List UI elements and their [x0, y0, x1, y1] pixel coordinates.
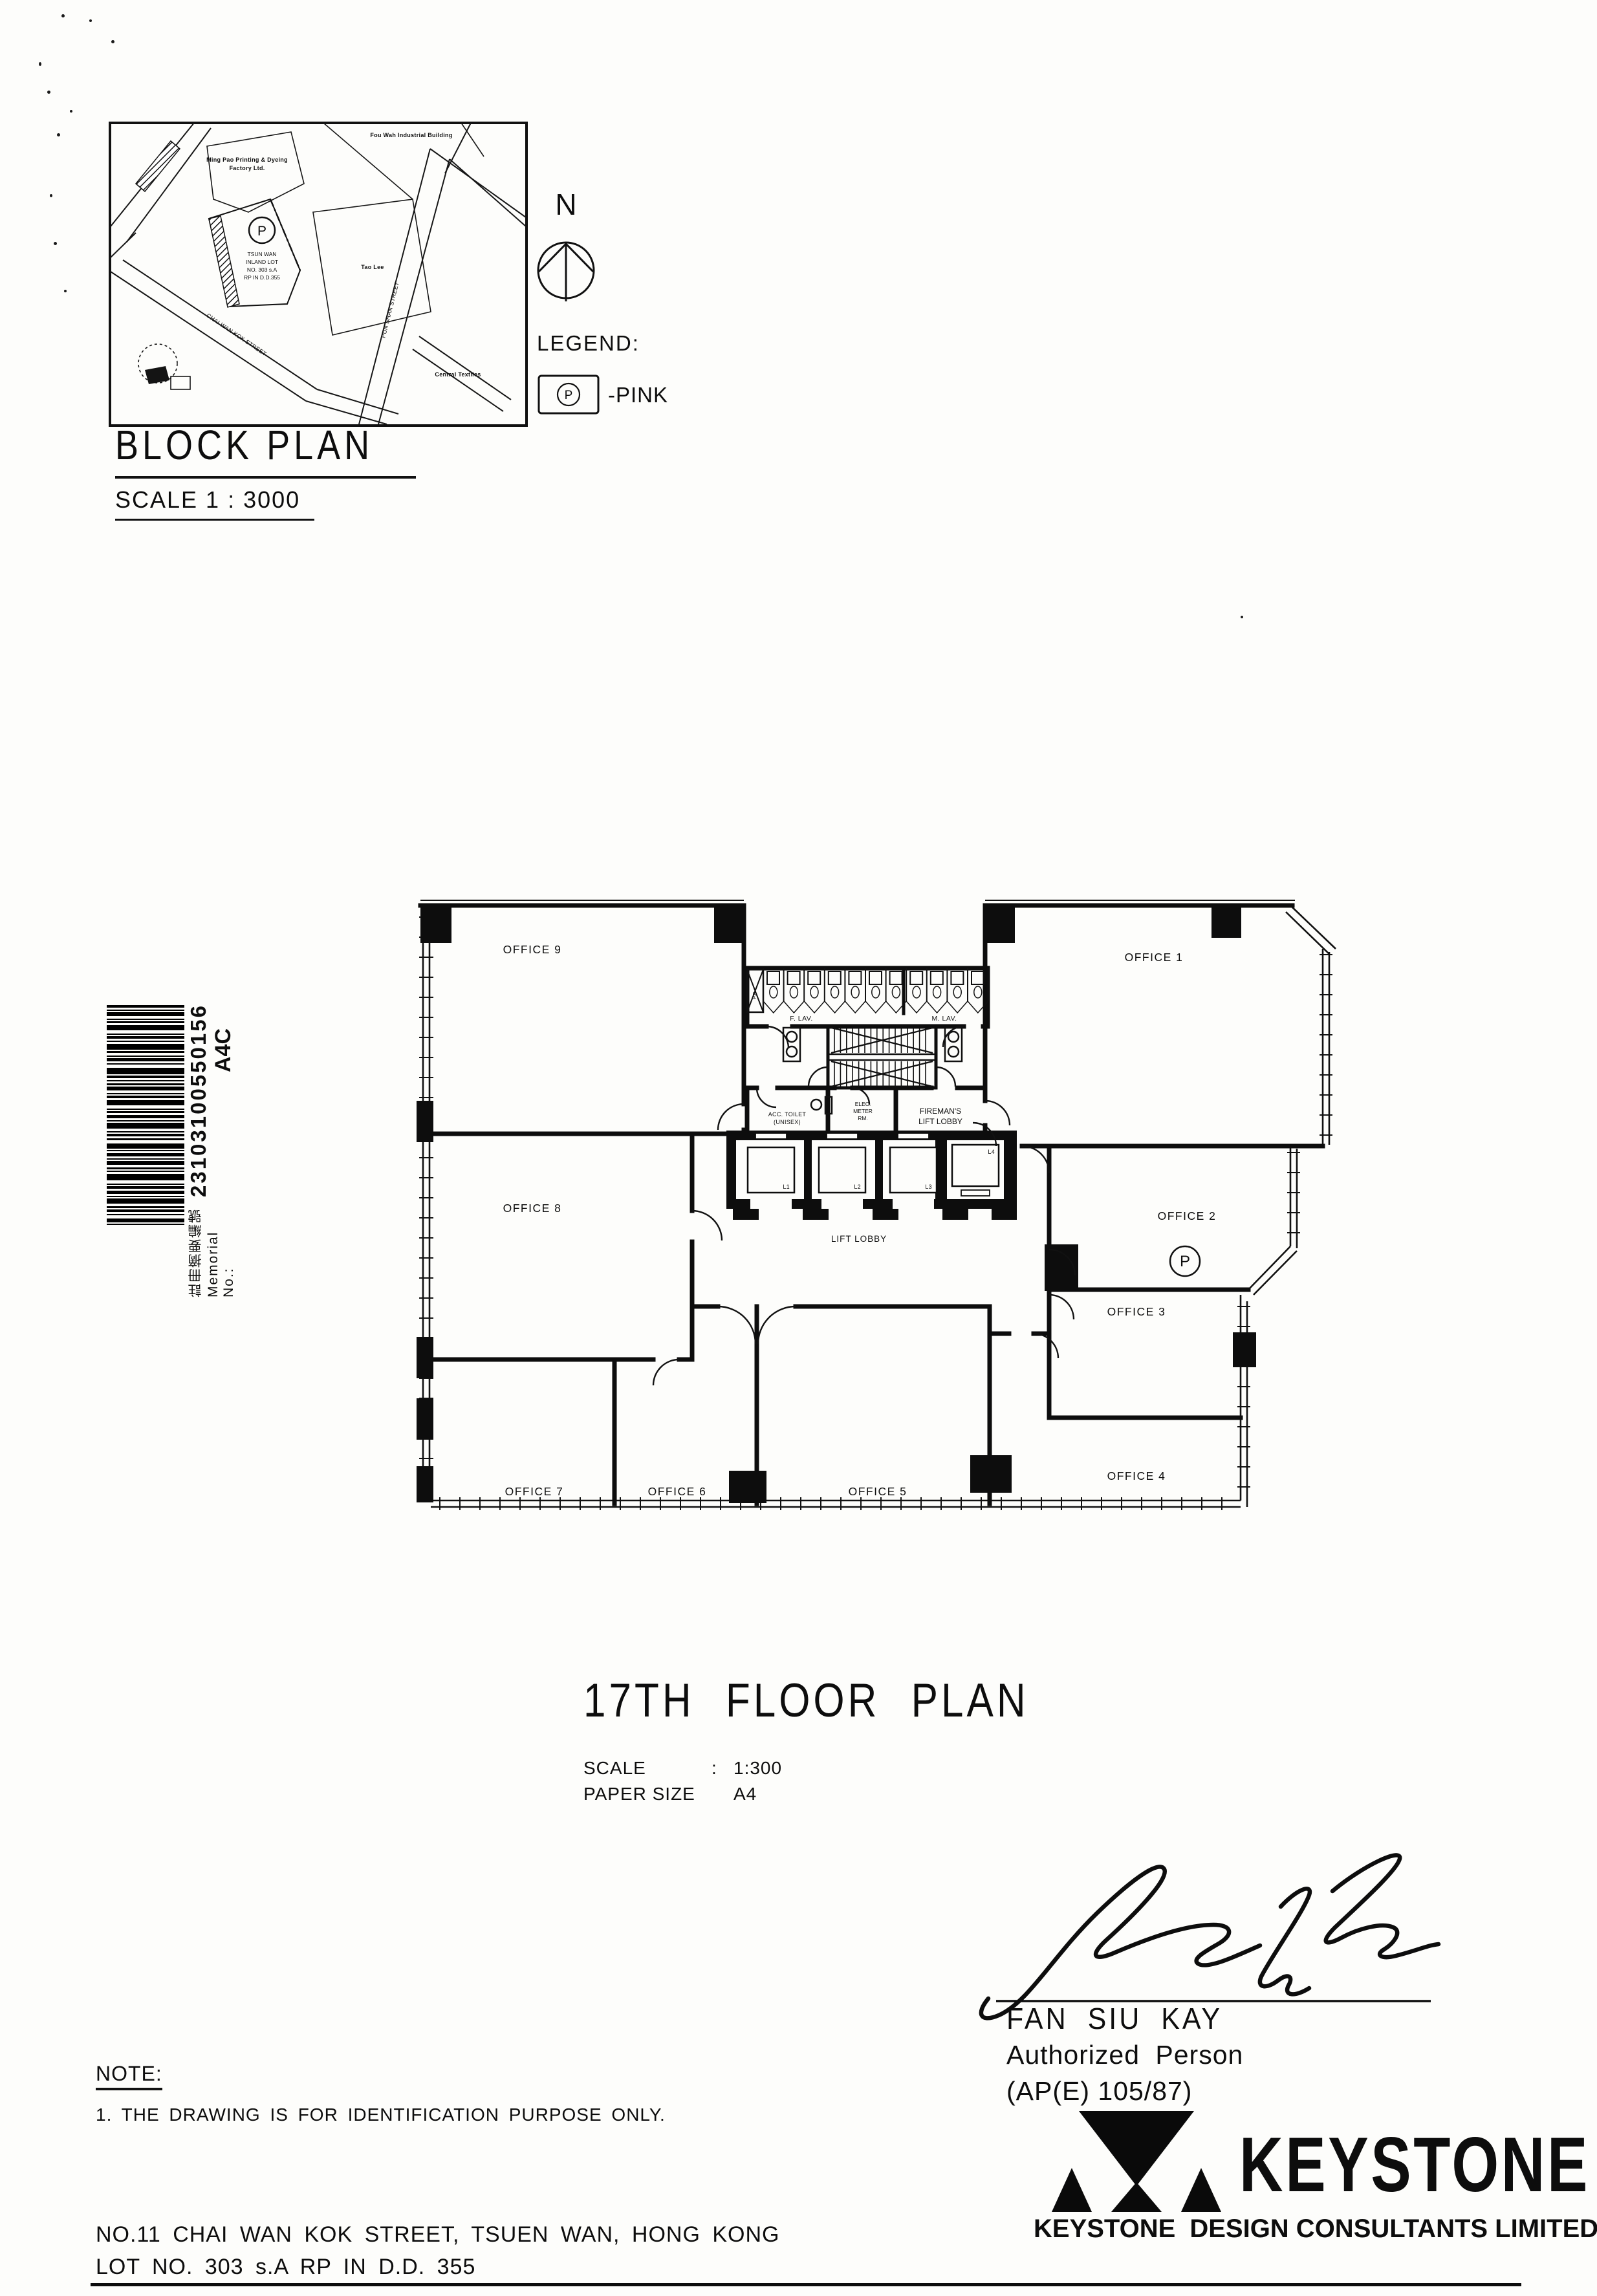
block-plan-title-underline: [115, 476, 416, 479]
brand-name-small: KEYSTONE: [1034, 2215, 1175, 2243]
scale-label: SCALE: [583, 1758, 712, 1779]
paper-value: A4: [733, 1784, 757, 1804]
scan-speck: [64, 290, 67, 292]
office-3-label: OFFICE 3: [1107, 1305, 1166, 1318]
brand-wordmark: KEYSTONE: [1239, 2121, 1590, 2210]
scale-colon: :: [712, 1758, 733, 1779]
signatory-name: FAN SIU KAY: [1006, 2002, 1222, 2037]
memorial-label: 註冊摘要編號 Memorial No.:: [186, 1197, 237, 1297]
north-label: N: [555, 188, 576, 221]
office-9-label: OFFICE 9: [503, 943, 562, 956]
bottom-rule: [91, 2283, 1521, 2286]
office-1-label: OFFICE 1: [1125, 951, 1184, 964]
keystone-logo-icon: [1041, 2110, 1232, 2215]
fireman-label-1: FIREMAN'S: [920, 1107, 961, 1116]
address-line-1: NO.11 CHAI WAN KOK STREET, TSUEN WAN, HO…: [96, 2222, 779, 2247]
block-plan-scale-underline: [115, 519, 314, 521]
lift-l4-label: L4: [988, 1149, 995, 1155]
barcode: [107, 1004, 186, 1297]
map-label-ming-pao-2: Factory Ltd.: [229, 165, 265, 171]
block-plan-scale: SCALE 1 : 3000: [115, 486, 300, 514]
legend-value: -PINK: [608, 383, 668, 407]
map-border: [110, 123, 527, 426]
signature: [970, 1829, 1452, 2023]
note-heading: NOTE:: [96, 2062, 162, 2090]
map-label-fou-wah: Fou Wah Industrial Building: [370, 132, 452, 138]
lift-l3-label: L3: [925, 1184, 932, 1190]
address-line-2: LOT NO. 303 s.A RP IN D.D. 355: [96, 2255, 475, 2280]
brand-company-line: KEYSTONEDESIGN CONSULTANTS LIMITED: [1034, 2215, 1597, 2244]
elec-label-1: ELEC.: [855, 1101, 871, 1107]
site-hatch-strip: [209, 216, 239, 307]
acc-toilet-label-2: (UNISEX): [774, 1119, 801, 1125]
m-lav-label: M. LAV.: [931, 1015, 957, 1023]
brand-suffix: DESIGN CONSULTANTS LIMITED: [1190, 2215, 1597, 2243]
map-label-central: Central Textiles: [435, 371, 481, 378]
block-plan-map: P TSUN WAN INLAND LOT NO. 303 s.A RP IN …: [109, 122, 528, 427]
scan-speck: [111, 40, 114, 43]
floor-plan: L1 L2 L3 L4 OFFICE 9 OFFICE 1 O: [414, 887, 1371, 1554]
lift-l2-label: L2: [854, 1184, 861, 1190]
memorial-code: A4C: [211, 1008, 236, 1072]
scan-speck: [47, 91, 50, 94]
map-label-pun-shan: PUN SHAN STREET: [380, 281, 400, 339]
map-label-chai-wan-kok: CHAI WAN KOK STREET: [205, 312, 268, 358]
drawing-sheet: { "block_plan": { "title": "BLOCK PLAN",…: [0, 0, 1597, 2296]
site-line-3: NO. 303 s.A: [247, 266, 277, 273]
map-rail-hatch: [136, 141, 180, 191]
elec-label-3: RM.: [858, 1115, 868, 1121]
signature-strokes: [981, 1855, 1439, 2018]
north-arrow-icon: N: [529, 186, 603, 322]
paper-label: PAPER SIZE: [583, 1784, 712, 1804]
stair-treads: [829, 1028, 935, 1087]
scan-speck: [89, 19, 92, 22]
map-buildings: [138, 123, 484, 389]
scan-speck: [61, 14, 65, 17]
toilet-stalls: [763, 968, 988, 1013]
scan-speck: [1241, 616, 1243, 618]
map-label-tao-lee: Tao Lee: [361, 264, 384, 270]
lift-bank: L1 L2 L3 L4: [726, 1131, 1017, 1220]
fireman-label-2: LIFT LOBBY: [918, 1117, 962, 1126]
lift-l1-label: L1: [783, 1184, 790, 1190]
legend-p-letter: P: [565, 389, 573, 402]
note-item: 1. THE DRAWING IS FOR IDENTIFICATION PUR…: [96, 2105, 666, 2125]
f-lav-label: F. LAV.: [790, 1015, 813, 1023]
scale-row: SCALE:1:300: [583, 1758, 782, 1779]
scan-speck: [70, 110, 72, 113]
scan-speck: [54, 242, 57, 245]
office-2-label: OFFICE 2: [1158, 1209, 1217, 1222]
site-line-1: TSUN WAN: [247, 251, 276, 257]
office-2-p-label: P: [1180, 1253, 1190, 1270]
scan-speck: [57, 133, 60, 136]
lift-lobby-label: LIFT LOBBY: [831, 1234, 887, 1244]
paper-row: PAPER SIZEA4: [583, 1784, 757, 1804]
lobby-wall-teeth: [733, 1209, 1017, 1220]
scan-speck: [50, 194, 52, 197]
legend-p-icon: P: [537, 374, 602, 415]
site-line-2: INLAND LOT: [246, 259, 278, 265]
sheet-title: 17TH FLOOR PLAN: [583, 1674, 1029, 1728]
site-p-label: P: [257, 224, 266, 239]
office-4-label: OFFICE 4: [1107, 1469, 1166, 1482]
office-8-label: OFFICE 8: [503, 1202, 562, 1215]
scan-speck: [39, 62, 41, 66]
pd-label: P.D.: [752, 990, 757, 999]
subject-site: P TSUN WAN INLAND LOT NO. 303 s.A RP IN …: [209, 199, 300, 307]
office-5-label: OFFICE 5: [849, 1485, 907, 1498]
block-plan-title: BLOCK PLAN: [115, 422, 373, 469]
map-label-ming-pao-1: Ming Pao Printing & Dyeing: [206, 157, 288, 163]
map-streets: [111, 123, 526, 424]
elec-label-2: METER: [853, 1108, 873, 1114]
scale-value: 1:300: [733, 1758, 782, 1778]
signatory-role: Authorized Person: [1006, 2040, 1243, 2070]
legend-title: LEGEND:: [537, 331, 640, 356]
stair: [828, 1026, 936, 1088]
signatory-cert: (AP(E) 105/87): [1006, 2076, 1192, 2106]
site-line-4: RP IN D.D.355: [244, 274, 280, 281]
office-6-label: OFFICE 6: [648, 1485, 707, 1498]
acc-toilet-label-1: ACC. TOILET: [768, 1111, 807, 1118]
office-7-label: OFFICE 7: [505, 1485, 564, 1498]
